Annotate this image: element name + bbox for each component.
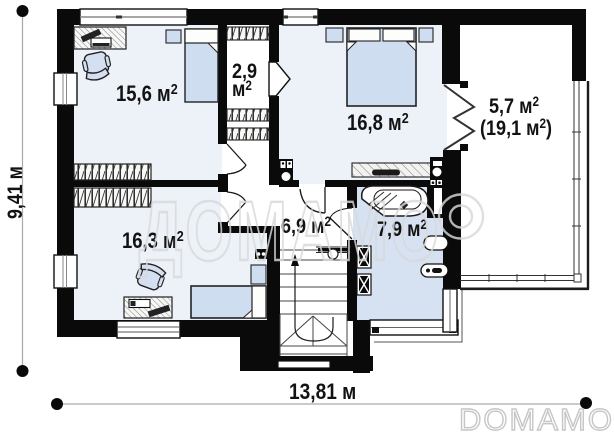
svg-text:9,41 м: 9,41 м <box>4 166 28 219</box>
svg-text:ДОМАМО: ДОМАМО <box>139 183 442 278</box>
svg-text:15,6 м2: 15,6 м2 <box>116 80 178 106</box>
svg-text:DOMAMO: DOMAMO <box>459 402 614 434</box>
svg-text:5,7 м2: 5,7 м2 <box>489 93 539 118</box>
svg-text:16,8 м2: 16,8 м2 <box>347 109 409 135</box>
svg-text:13,81 м: 13,81 м <box>289 380 356 405</box>
